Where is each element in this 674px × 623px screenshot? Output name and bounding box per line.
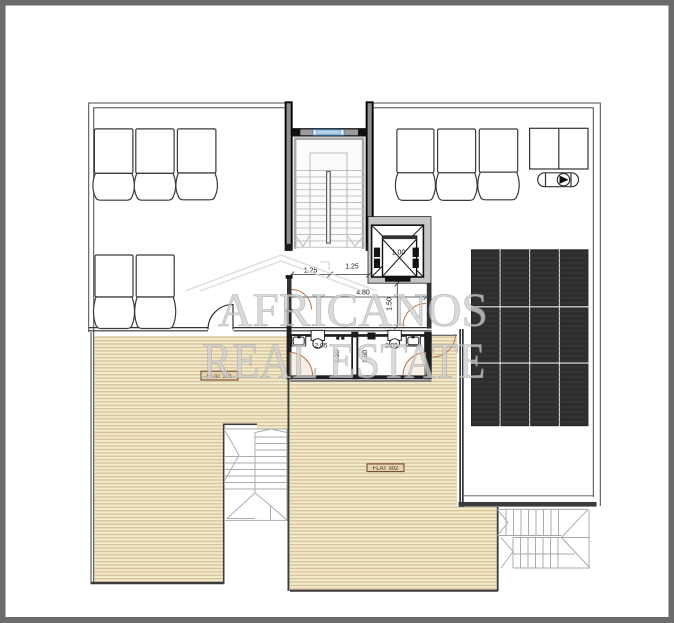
svg-text:1.25: 1.25	[345, 264, 359, 271]
svg-text:FLAT 302: FLAT 302	[373, 466, 399, 472]
svg-text:REAL ESTATE: REAL ESTATE	[203, 334, 486, 390]
svg-text:.80: .80	[415, 247, 421, 255]
svg-text:1.00: 1.00	[392, 250, 406, 257]
svg-text:AFRICANOS: AFRICANOS	[218, 284, 488, 337]
